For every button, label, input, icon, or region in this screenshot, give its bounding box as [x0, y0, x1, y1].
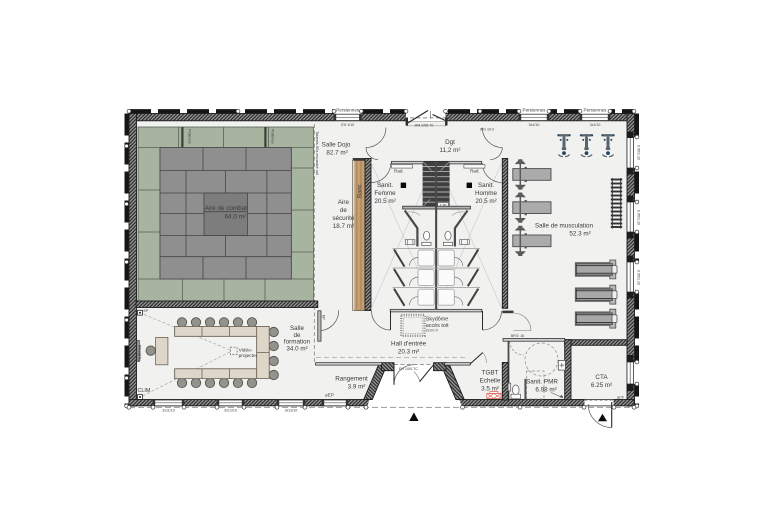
svg-text:64.0 m²: 64.0 m² [225, 213, 246, 220]
svg-text:Echelle: Echelle [480, 378, 501, 385]
svg-text:3x1/10: 3x1/10 [529, 123, 540, 127]
svg-text:CLIM: CLIM [138, 388, 151, 394]
svg-text:aCF: aCF [617, 396, 625, 400]
svg-text:Persiennes: Persiennes [336, 108, 360, 113]
svg-text:CTA: CTA [595, 374, 608, 381]
svg-text:0.95/1.10: 0.95/1.10 [637, 270, 641, 285]
svg-text:Sanit. PMR: Sanit. PMR [526, 378, 558, 385]
svg-text:3x11/10: 3x11/10 [162, 409, 175, 413]
svg-text:EH 1/00-TC: EH 1/00-TC [399, 367, 418, 371]
svg-text:Salle Dojo: Salle Dojo [322, 142, 351, 149]
svg-text:18.7 m²: 18.7 m² [333, 223, 354, 230]
svg-text:Homme: Homme [475, 190, 498, 197]
svg-text:6.25 m²: 6.25 m² [591, 382, 612, 389]
svg-text:Banc: Banc [358, 184, 364, 198]
svg-text:6.98 m²: 6.98 m² [535, 386, 556, 393]
svg-text:3x12/10: 3x12/10 [224, 409, 237, 413]
svg-text:Tableau: Tableau [137, 344, 143, 361]
svg-text:0.95/1.10: 0.95/1.10 [637, 145, 641, 160]
svg-text:HM 2/05-70: HM 2/05-70 [415, 123, 434, 127]
svg-text:Skydôme: Skydôme [426, 316, 448, 322]
svg-text:2x1m / h: 2x1m / h [426, 329, 438, 333]
svg-text:⌀EP: ⌀EP [325, 393, 334, 398]
svg-text:BP/2: 16: BP/2: 16 [511, 334, 524, 338]
svg-text:52.3 m²: 52.3 m² [569, 231, 590, 238]
svg-text:Rad.: Rad. [470, 169, 480, 174]
svg-text:EP: EP [144, 309, 149, 313]
svg-text:Aire de combat: Aire de combat [205, 205, 248, 212]
svg-text:20.5 m²: 20.5 m² [374, 198, 395, 205]
svg-text:Rangement: Rangement [335, 376, 368, 383]
svg-text:Dgt: Dgt [445, 139, 455, 146]
svg-text:Vidéo-: Vidéo- [239, 348, 253, 354]
svg-text:de: de [340, 207, 348, 214]
svg-text:3x13/10: 3x13/10 [285, 409, 298, 413]
svg-text:11,2 m²: 11,2 m² [440, 147, 461, 154]
svg-text:Femme: Femme [374, 190, 396, 197]
svg-text:Tatamis 50s encastré sol: Tatamis 50s encastré sol [315, 131, 320, 175]
svg-text:EP: EP [322, 315, 326, 320]
svg-text:TGBT: TGBT [482, 370, 499, 377]
svg-text:Salle de musculation: Salle de musculation [535, 223, 594, 230]
svg-text:0.95/1.10: 0.95/1.10 [637, 210, 641, 225]
svg-text:82.7 m²: 82.7 m² [326, 150, 347, 157]
svg-text:Potence: Potence [188, 129, 193, 144]
svg-text:Hall d'entrée: Hall d'entrée [391, 340, 427, 347]
svg-text:Aire: Aire [338, 199, 350, 206]
svg-text:Persiennes: Persiennes [584, 108, 608, 113]
svg-text:Sanit.: Sanit. [377, 182, 393, 189]
svg-text:Sanit.: Sanit. [478, 182, 494, 189]
svg-text:34.0 m²: 34.0 m² [286, 345, 307, 352]
svg-text:sécurité: sécurité [332, 215, 355, 222]
svg-text:Persiennes: Persiennes [523, 108, 547, 113]
svg-text:Potence: Potence [271, 129, 276, 144]
svg-text:20.3 m²: 20.3 m² [398, 348, 419, 355]
svg-text:3.9 m²: 3.9 m² [348, 384, 366, 391]
svg-text:3x1/10: 3x1/10 [590, 123, 601, 127]
svg-text:EH 1/10: EH 1/10 [341, 123, 354, 127]
svg-text:Rad.: Rad. [394, 169, 404, 174]
svg-text:20.5 m²: 20.5 m² [475, 198, 496, 205]
